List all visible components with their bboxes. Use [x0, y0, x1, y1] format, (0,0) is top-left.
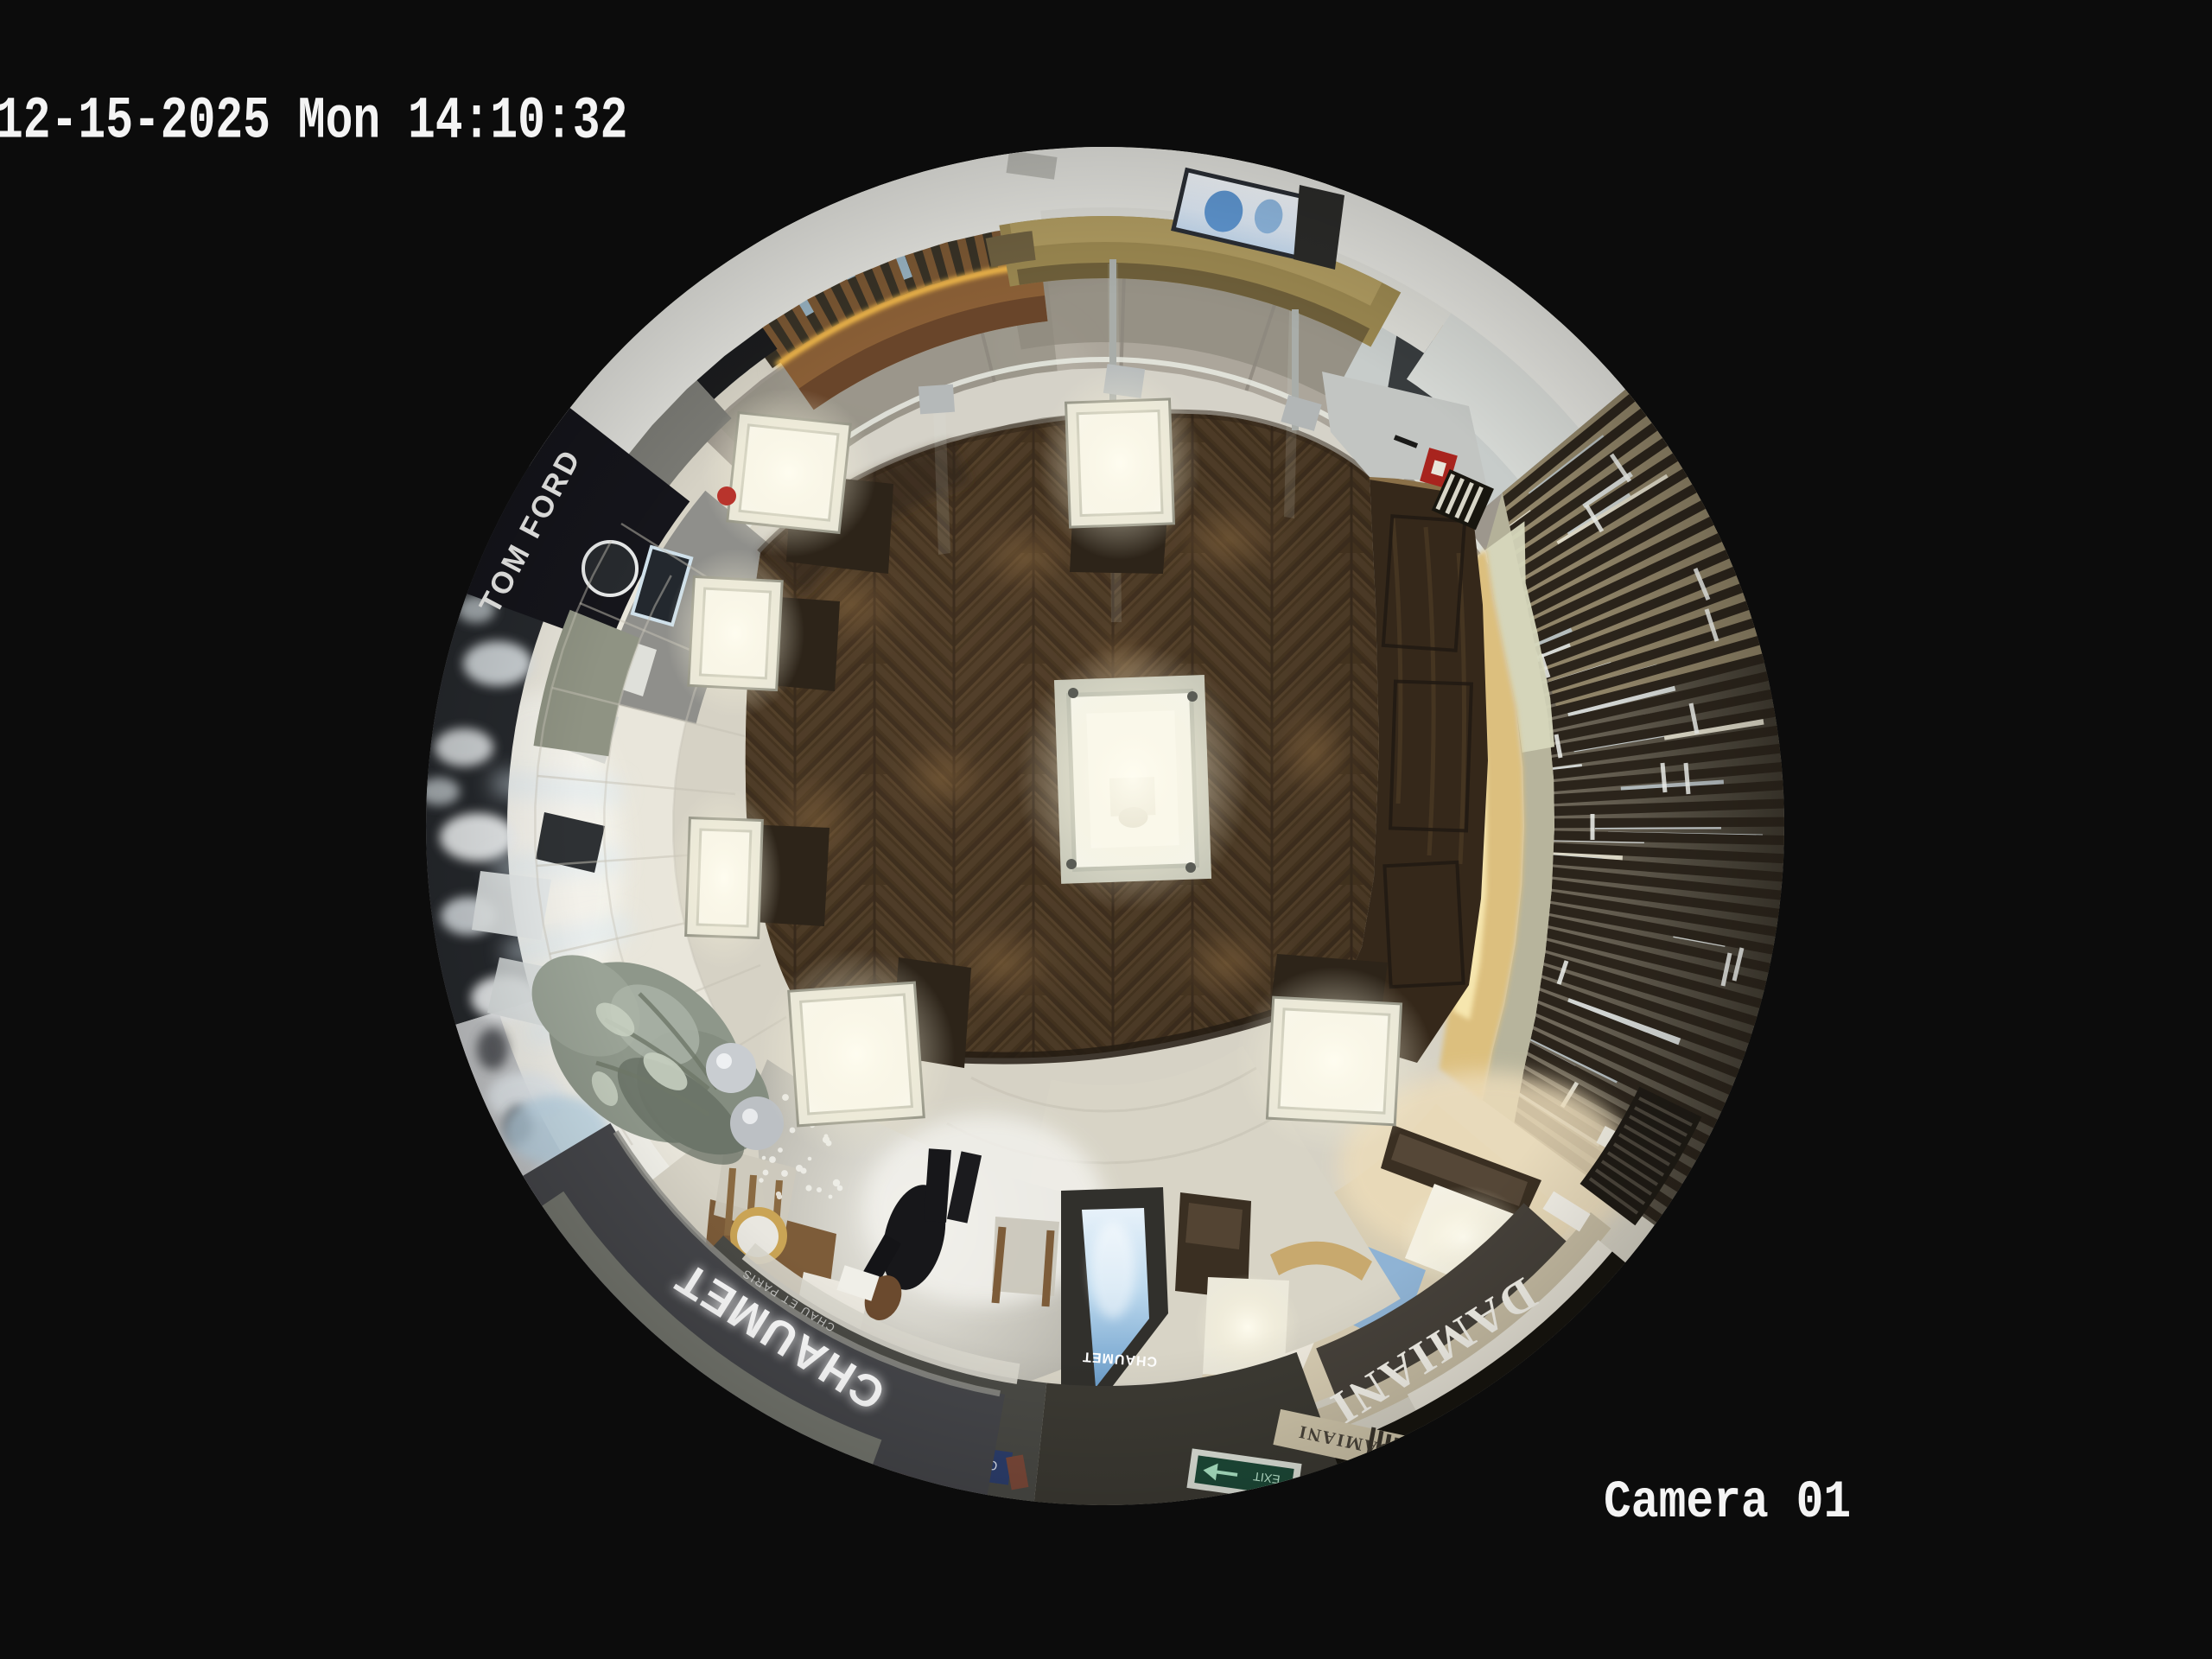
svg-text:Camera 01: Camera 01: [1604, 1473, 1851, 1533]
svg-text:12-15-2025 Mon 14:10:32: 12-15-2025 Mon 14:10:32: [0, 89, 627, 156]
